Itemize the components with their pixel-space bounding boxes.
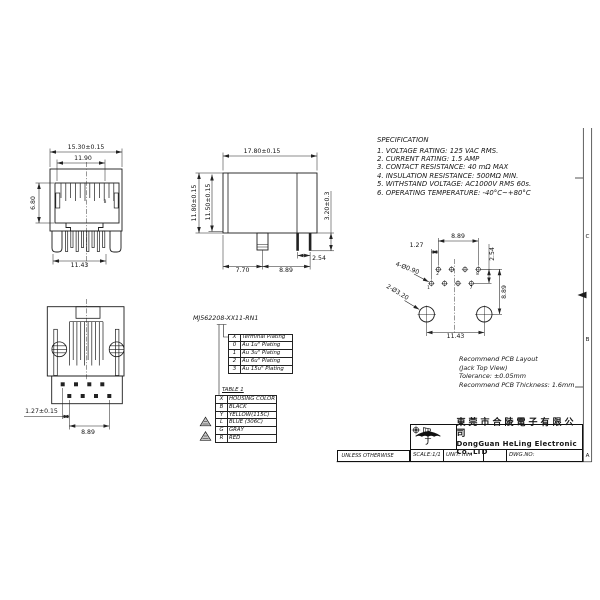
company-name-cn: 東莞市合陵電子有限公司: [457, 418, 583, 440]
cell-code: G: [216, 427, 228, 435]
table-row: 1 Au 3u" Plating: [229, 350, 293, 358]
cell-label: RED: [228, 435, 277, 443]
cell-code: 2: [229, 358, 241, 366]
scale-cell: SCALE:1/1: [411, 450, 444, 461]
company-name-cell: 東莞市合陵電子有限公司 DongGuan HeLing Electronic C…: [457, 425, 583, 449]
pcb-pin-label-8: 8: [476, 272, 479, 276]
dim-side-pin-span: 8.89: [279, 268, 293, 274]
front-pin8-label: 8: [104, 201, 107, 205]
table-row: 3 Au 15u" Plating: [229, 366, 293, 374]
spec-item: 2. CURRENT RATING: 1.5 AMP: [377, 155, 531, 163]
cell-label: Au 6u" Plating: [241, 358, 293, 366]
dim-side-pin-pitch: 2.54: [312, 255, 326, 261]
dim-bottom-row-offset: 1.27±0.15: [25, 409, 58, 415]
unit-cell: UNIT: mm: [444, 450, 484, 461]
cell-label: YELLOW(115C): [228, 411, 277, 419]
cell-code: R: [216, 435, 228, 443]
cell-label: BLACK: [228, 403, 277, 411]
cell-code: Y: [216, 411, 228, 419]
table-row: G GRAY: [216, 427, 277, 435]
spec-item: 5. WITHSTAND VOLTAGE: AC1000V RMS 60s.: [377, 180, 531, 188]
dim-front-inner-width: 11.90: [74, 156, 92, 162]
cell-label: Au 3u" Plating: [241, 350, 293, 358]
dim-side-pin-length: 3.20±0.3: [324, 192, 330, 221]
cell-label: GRAY: [228, 427, 277, 435]
border-center-arrow-icon: [578, 292, 587, 299]
spec-item: 3. CONTACT RESISTANCE: 40 mΩ MAX: [377, 163, 531, 171]
dim-side-width: 17.80±0.15: [244, 148, 281, 154]
revision-triangle-icons: [200, 417, 211, 440]
cell-code: L: [216, 419, 228, 427]
table-row: 0 Au 1u" Plating: [229, 342, 293, 350]
table-row: Y YELLOW(115C): [216, 411, 277, 419]
spec-item: 1. VOLTAGE RATING: 125 VAC RMS.: [377, 147, 531, 155]
unless-otherwise-note: UNLESS OTHERWISE: [337, 450, 411, 462]
dim-front-leg-span: 11.43: [71, 263, 89, 269]
cell-code: 0: [229, 342, 241, 350]
table-row: L BLUE (306C): [216, 419, 277, 427]
part-number-leader-lines: [217, 325, 228, 395]
dim-front-opening-height: 6.80: [30, 196, 36, 210]
terminal-plating-table: X Terminal Plating 0 Au 1u" Plating 1 Au…: [228, 334, 293, 374]
spec-item: 4. INSULATION RESISTANCE: 500MΩ MIN.: [377, 172, 531, 180]
housing-color-table: X HOUSING COLOR B BLACK Y YELLOW(115C) L…: [215, 395, 277, 443]
cell-code: X: [216, 395, 228, 403]
projection-symbols-cell: [484, 450, 507, 461]
pcb-pin-label-2: 2: [436, 272, 439, 276]
title-block: 東莞市合陵電子有限公司 DongGuan HeLing Electronic C…: [410, 424, 583, 462]
cell-code: X: [229, 334, 241, 342]
dim-pcb-hole-offset: 1.27: [410, 243, 424, 249]
dim-side-height-outer: 11.80±0.15: [192, 185, 198, 222]
table-row: 2 Au 6u" Plating: [229, 358, 293, 366]
border-zone-c: C: [584, 234, 592, 240]
part-number: MJ562208-XX11-RN1: [193, 315, 258, 322]
dim-pcb-row-pitch: 2.54: [489, 247, 495, 261]
table-row: B BLACK: [216, 403, 277, 411]
cell-label: Au 15u" Plating: [241, 366, 293, 374]
color-table-title: TABLE 1: [222, 387, 244, 393]
dim-pcb-right-span: 8.89: [501, 285, 507, 299]
cell-code: 1: [229, 350, 241, 358]
pcb-layout-drawing: [405, 238, 503, 336]
cell-code: 3: [229, 366, 241, 374]
cell-label: HOUSING COLOR: [228, 395, 277, 403]
cell-label: BLUE (306C): [228, 419, 277, 427]
border-zone-a: A: [584, 453, 592, 459]
pcb-pin-label-1: 1: [427, 286, 430, 290]
specification-block: SPECIFICATION 1. VOLTAGE RATING: 125 VAC…: [377, 136, 531, 197]
pcb-pin-label-7: 7: [470, 287, 473, 291]
cell-label: Au 1u" Plating: [241, 342, 293, 350]
front-view-drawing: [36, 149, 123, 268]
cell-code: B: [216, 403, 228, 411]
dim-side-post-offset: 7.70: [236, 268, 250, 274]
drawing-line-art: [0, 0, 600, 600]
drawing-sheet: SPECIFICATION 1. VOLTAGE RATING: 125 VAC…: [0, 0, 600, 600]
dim-front-outer-width: 15.30±0.15: [68, 144, 105, 150]
dim-pcb-top-span: 8.89: [451, 233, 465, 239]
spec-item: 6. OPERATING TEMPERATURE: -40°C~+80°C: [377, 189, 531, 197]
table-row: R RED: [216, 435, 277, 443]
dim-pcb-mount-span: 11.43: [447, 334, 465, 340]
border-zone-b: B: [584, 337, 592, 343]
table-row: X HOUSING COLOR: [216, 395, 277, 403]
dwg-no-cell: DWG.NO:: [507, 450, 582, 461]
table-row: X Terminal Plating: [229, 334, 293, 342]
cell-label: Terminal Plating: [241, 334, 293, 342]
dim-side-height-inner: 11.50±0.15: [205, 184, 211, 221]
dim-bottom-pin-span: 8.89: [81, 429, 95, 435]
side-view-drawing: [196, 153, 335, 270]
specification-title: SPECIFICATION: [377, 136, 531, 144]
